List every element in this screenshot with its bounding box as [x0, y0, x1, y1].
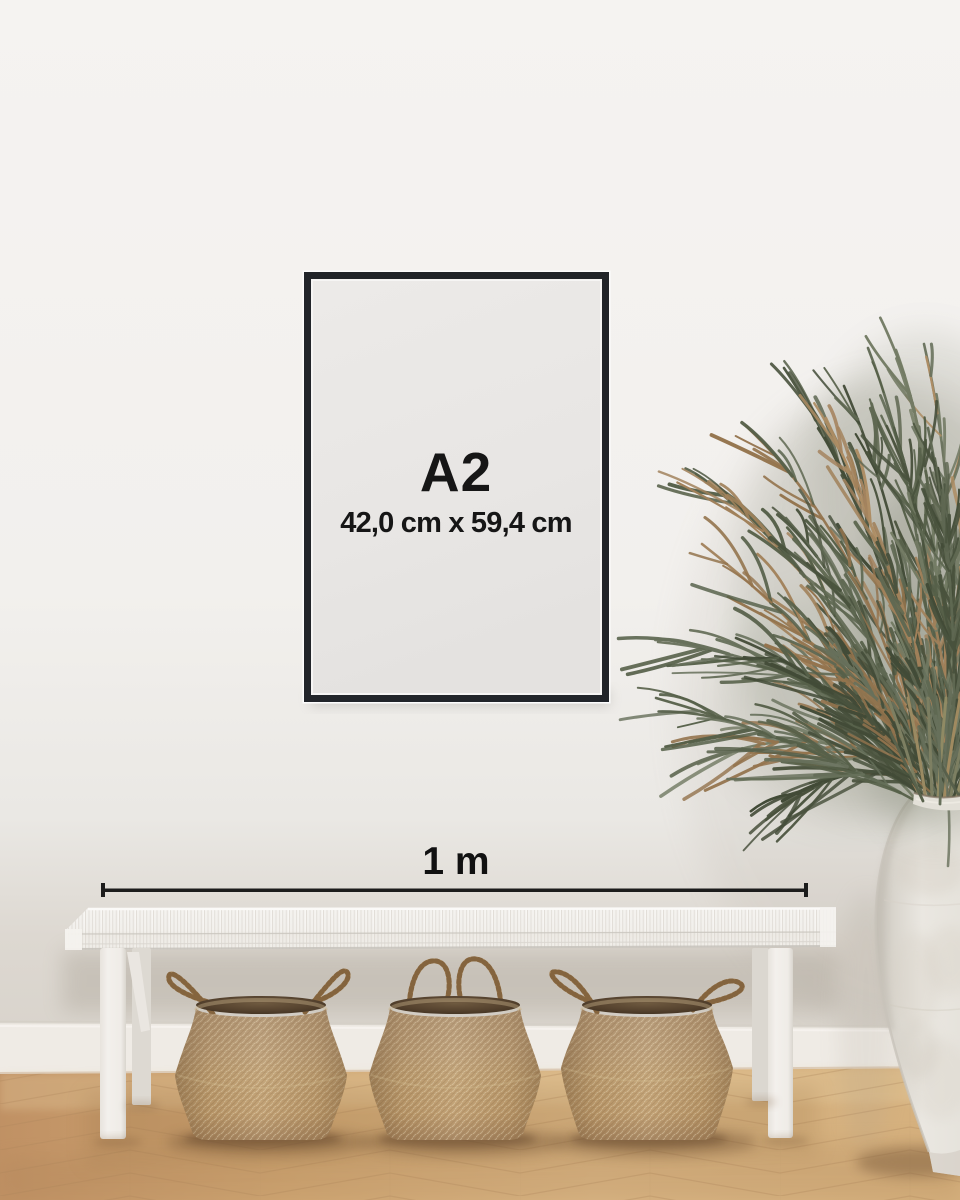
svg-text:42,0 cm x 59,4 cm: 42,0 cm x 59,4 cm: [340, 507, 571, 539]
svg-text:A2: A2: [420, 441, 492, 503]
svg-text:1 m: 1 m: [422, 840, 489, 883]
